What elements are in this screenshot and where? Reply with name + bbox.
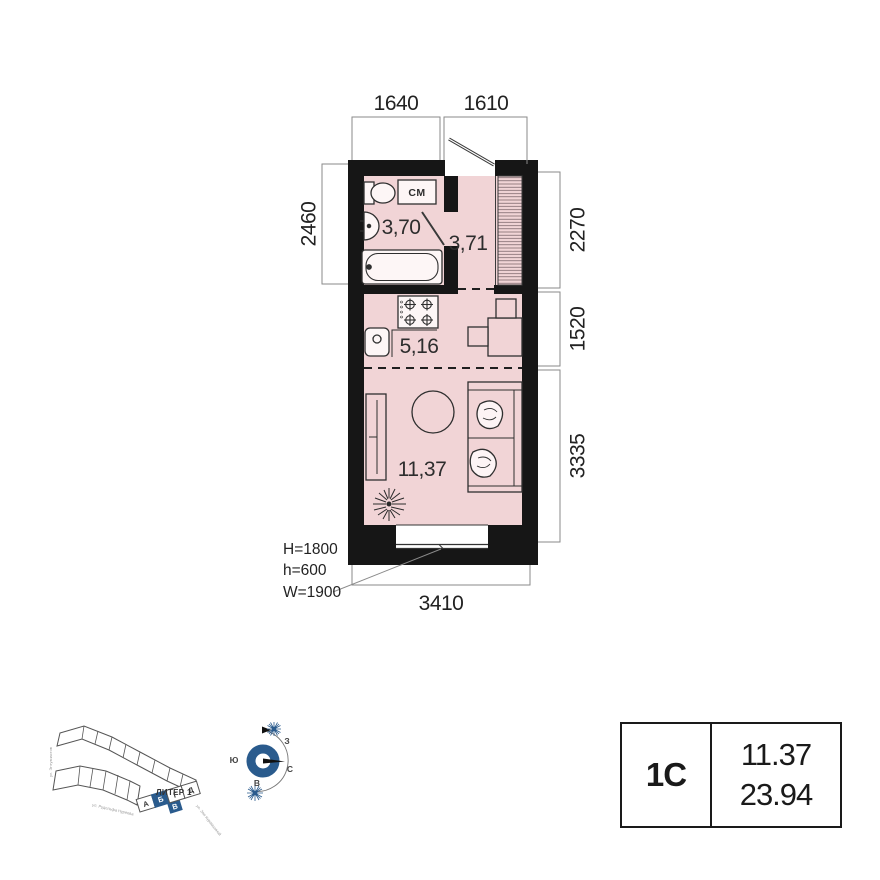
wall-right xyxy=(522,160,538,565)
chair-left xyxy=(468,327,488,346)
sun-icon-top xyxy=(267,722,281,736)
pillow-bottom xyxy=(470,449,496,477)
kitchen-sink xyxy=(365,328,389,356)
compass: З Ю С В xyxy=(230,722,293,801)
window-height-label: H=1800 xyxy=(283,541,338,558)
dim-top-left: 1640 xyxy=(374,92,419,115)
dim-box-top-right xyxy=(444,117,527,164)
round-table xyxy=(412,391,454,433)
pillow-top xyxy=(477,401,503,429)
kitchen-area-label: 5,16 xyxy=(400,335,439,358)
floor-plan: 3,70 3,71 5,16 11,37 СМ 1640 1610 2460 2… xyxy=(283,92,590,615)
street-label-1: ул. Энтузиастов xyxy=(48,747,53,777)
toilet xyxy=(364,182,395,204)
window xyxy=(396,525,488,549)
compass-east-label: В xyxy=(254,778,260,788)
dim-right-bottom: 3335 xyxy=(567,434,590,479)
dim-top-right: 1610 xyxy=(464,92,509,115)
street-label-3: ул. Зои Курамшиной xyxy=(195,804,222,837)
compass-north-label: С xyxy=(287,764,293,774)
stove xyxy=(398,296,438,328)
areas-cell: 11.37 23.94 xyxy=(712,724,840,826)
dim-right-mid: 1520 xyxy=(567,307,590,352)
bathroom-area-label: 3,70 xyxy=(382,216,421,239)
dining-table xyxy=(488,318,522,356)
hallway-area-label: 3,71 xyxy=(449,232,488,255)
wall-top-left-seg xyxy=(348,160,445,176)
dim-box-top-left xyxy=(352,117,440,160)
bed xyxy=(468,382,522,492)
site-plan: А Б В Г Д ЛИТЕР 1 ул. Энтузиастов ул. Ру… xyxy=(48,726,223,837)
dim-box-right-mid xyxy=(538,292,560,366)
compass-south-label: Ю xyxy=(230,755,239,765)
washing-machine-label: СМ xyxy=(408,187,425,199)
wall-bathroom-right-upper xyxy=(444,176,458,212)
dim-box-left xyxy=(322,164,348,284)
unit-type-cell: 1С xyxy=(622,724,712,826)
living-area-label: 11,37 xyxy=(398,458,447,481)
compass-west-label: З xyxy=(284,736,289,746)
liter-label: ЛИТЕР 1 xyxy=(156,788,192,797)
wall-bathroom-bottom xyxy=(364,285,458,294)
bathtub xyxy=(362,250,442,284)
wall-top-right-seg xyxy=(495,160,538,176)
chair-top xyxy=(496,299,516,318)
dim-box-right-top xyxy=(538,172,560,288)
spec-table: 1С 11.37 23.94 xyxy=(620,722,842,828)
window-annotation: H=1800 h=600 W=1900 xyxy=(283,541,342,601)
living-area-value: 11.37 xyxy=(741,735,811,775)
closet-hatch xyxy=(496,176,523,285)
wall-stub-hall xyxy=(494,285,522,294)
dim-box-bottom xyxy=(352,565,530,585)
total-area-value: 23.94 xyxy=(740,775,813,815)
floorplan-page: 3,70 3,71 5,16 11,37 СМ 1640 1610 2460 2… xyxy=(0,0,880,880)
window-sill-label: h=600 xyxy=(283,562,327,579)
dim-bottom: 3410 xyxy=(419,592,464,615)
street-label-2: ул. Рудольфа Нуреева xyxy=(92,802,135,817)
window-width-label: W=1900 xyxy=(283,584,342,601)
dim-right-top: 2270 xyxy=(567,208,590,253)
dim-left: 2460 xyxy=(298,202,321,247)
wardrobe xyxy=(366,394,386,480)
dim-box-right-bottom xyxy=(538,370,560,542)
